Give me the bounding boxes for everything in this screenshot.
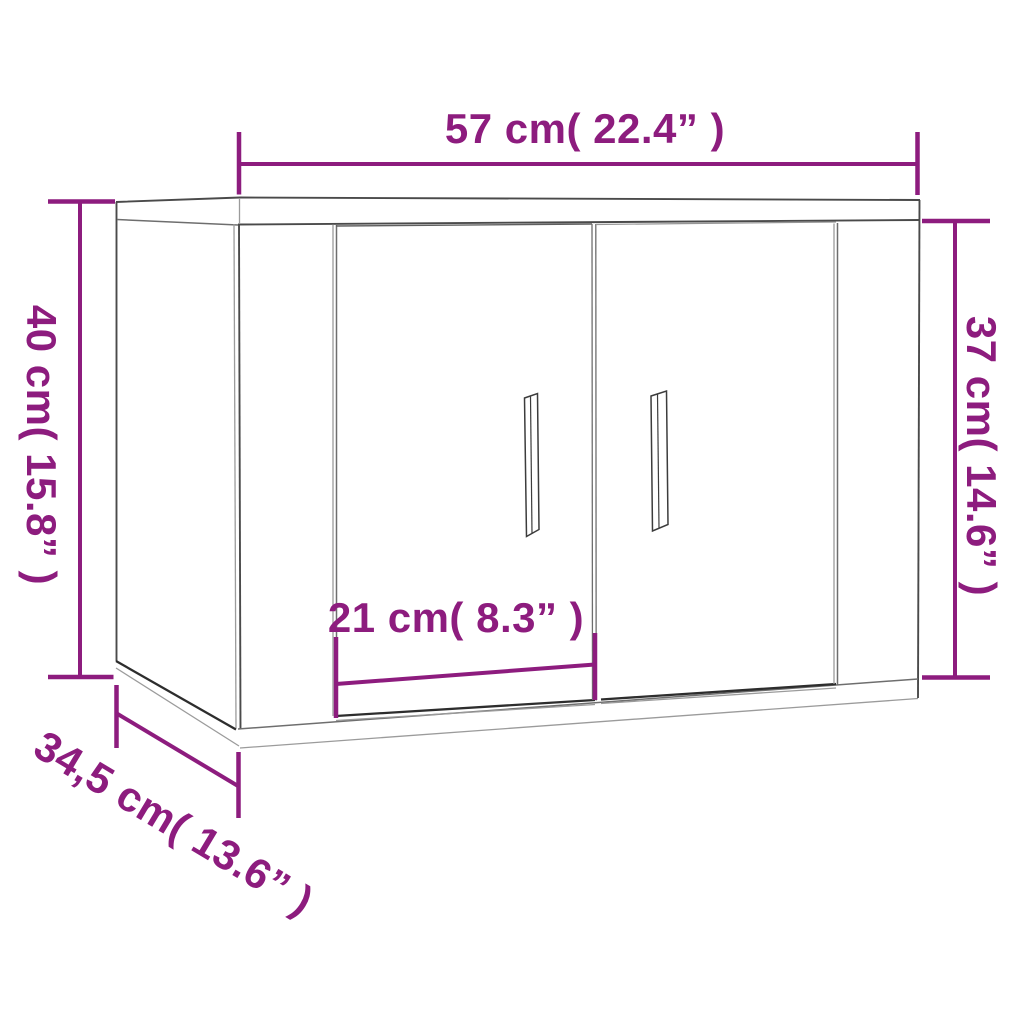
door-gap-left-edge	[592, 224, 593, 700]
right-door-bottom-edge-under	[601, 688, 836, 704]
dimension-door-width: 21 cm( 8.3” )	[328, 594, 595, 718]
dimension-door-width-line	[336, 665, 595, 685]
cabinet-face-bottom-edge	[238, 679, 918, 729]
dimension-depth: 34,5 cm( 13.6” )	[26, 685, 321, 925]
dimension-width: 57 cm( 22.4” )	[239, 105, 918, 195]
cabinet-drawing	[116, 198, 920, 749]
cabinet-top-back-edge	[116, 198, 920, 203]
front-left-edge	[239, 225, 241, 730]
front-left-edge-outer	[234, 224, 236, 728]
dimension-height-right: 37 cm( 14.6” )	[922, 221, 1005, 678]
left-door-bottom-edge	[336, 700, 595, 716]
dimension-width-label: 57 cm( 22.4” )	[445, 105, 725, 152]
dimension-depth-label: 34,5 cm( 13.6” )	[26, 721, 321, 924]
left-side-bottom-edge	[116, 661, 236, 730]
left-side-top-edge	[117, 220, 238, 226]
dimension-height-right-label: 37 cm( 14.6” )	[958, 316, 1005, 596]
cabinet-right-edge	[918, 200, 920, 698]
dimension-diagram: 57 cm( 22.4” ) 40 cm( 15.8” ) 37 cm( 14.…	[0, 0, 1024, 1024]
dimension-door-width-label: 21 cm( 8.3” )	[328, 594, 584, 641]
dimension-height-left: 40 cm( 15.8” )	[18, 202, 115, 678]
right-door-handle	[651, 391, 668, 531]
bottom-panel-left-edge	[116, 668, 239, 746]
right-door-bottom-edge	[601, 684, 836, 700]
dimension-height-left-label: 40 cm( 15.8” )	[18, 305, 65, 585]
